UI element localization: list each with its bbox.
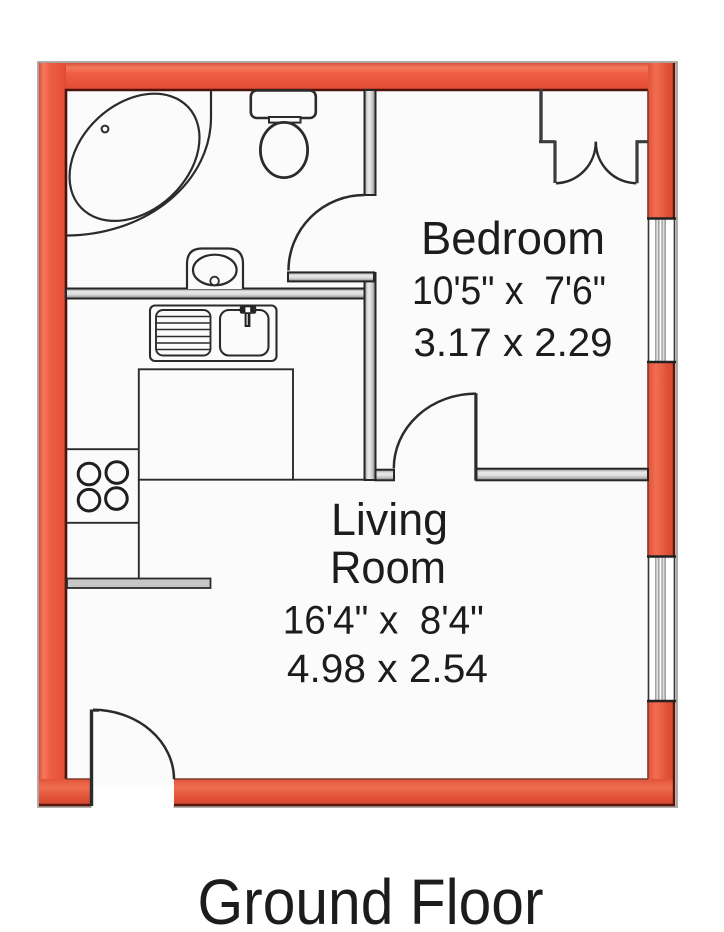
svg-text:3.17 x 2.29: 3.17 x 2.29 bbox=[414, 321, 613, 365]
svg-text:Bedroom: Bedroom bbox=[421, 212, 605, 264]
svg-text:4.98 x 2.54: 4.98 x 2.54 bbox=[287, 647, 488, 691]
svg-text:Living: Living bbox=[331, 494, 448, 545]
svg-text:Ground Floor: Ground Floor bbox=[198, 866, 544, 932]
svg-text:Room: Room bbox=[330, 542, 446, 593]
svg-text:10'5" x 7'6": 10'5" x 7'6" bbox=[412, 269, 606, 313]
svg-text:16'4" x 8'4": 16'4" x 8'4" bbox=[283, 599, 484, 643]
